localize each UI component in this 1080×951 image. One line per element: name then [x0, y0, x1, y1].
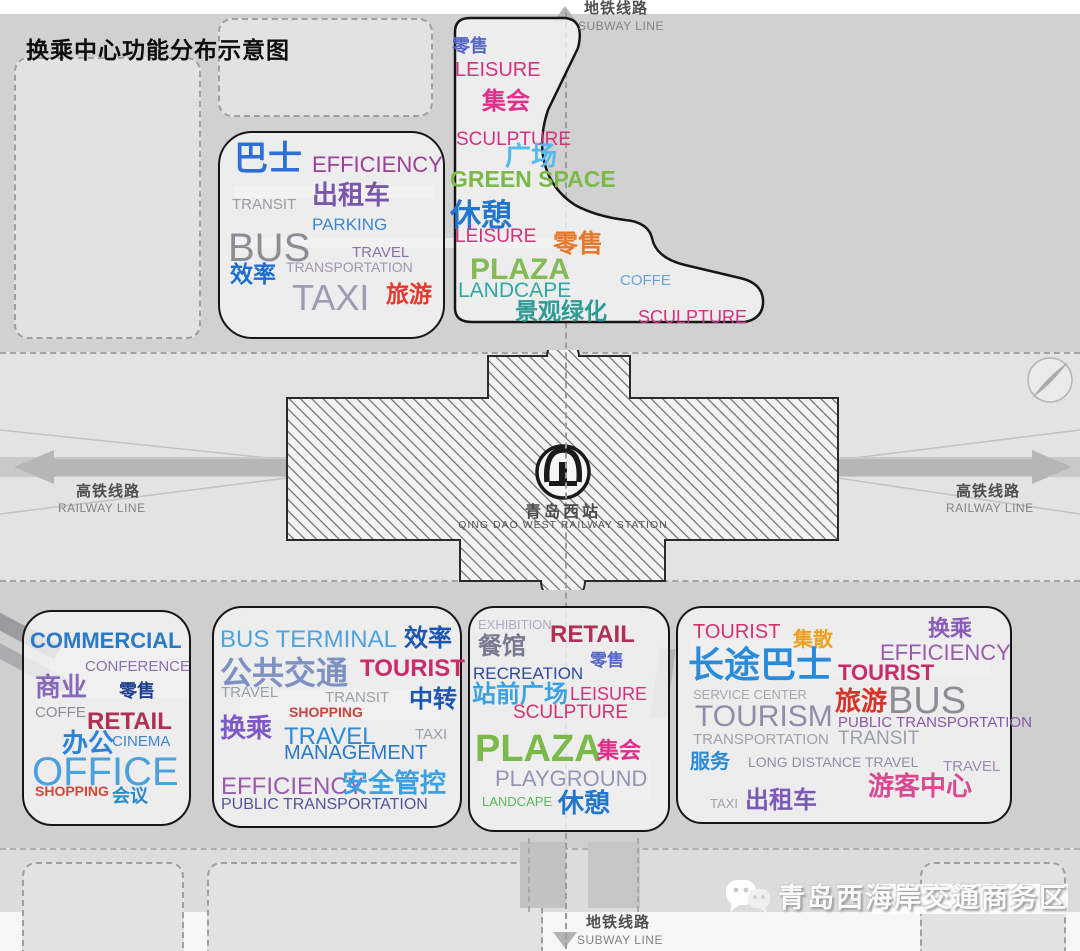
cloud-word: LONG DISTANCE TRAVEL [748, 755, 918, 769]
cloud-word: GREEN SPACE [450, 168, 616, 191]
railway-arrow-left-icon [14, 450, 54, 484]
cloud-word: 零售 [452, 37, 488, 55]
cloud-word: TOURIST [693, 622, 780, 642]
railway-right-label-en: RAILWAY LINE [946, 502, 1034, 515]
cloud-word: LEISURE [570, 685, 647, 703]
cloud-word: LEISURE [455, 227, 536, 246]
cloud-word: 旅游 [386, 283, 432, 306]
cloud-word: 集会 [597, 740, 641, 762]
cloud-word: EXHIBITION [478, 618, 552, 631]
cloud-word: 效率 [404, 627, 452, 651]
subway-bottom-label-cn: 地铁线路 [586, 915, 650, 932]
cloud-word: SCULPTURE [513, 703, 628, 722]
cloud-word: 换乘 [220, 715, 272, 741]
cloud-word: PARKING [312, 216, 387, 233]
cloud-word: 会议 [112, 787, 148, 805]
cloud-word: 服务 [690, 752, 730, 772]
cloud-word: 餐馆 [478, 635, 526, 659]
cloud-word: SHOPPING [35, 784, 109, 798]
cloud-word: LANDCAPE [482, 795, 552, 808]
subway-bottom-label-en: SUBWAY LINE [577, 934, 663, 947]
cloud-word: 集会 [482, 90, 530, 114]
station-name-en: QING DAO WEST RAILWAY STATION [413, 519, 713, 531]
railway-right-label-cn: 高铁线路 [956, 484, 1020, 501]
cloud-word: TRANSIT [838, 729, 919, 748]
wordcloud-tourist-se: TOURIST集散换乘长途巴士EFFICIENCYTOURISTSERVICE … [676, 606, 1012, 824]
cloud-word: 零售 [590, 652, 624, 669]
railway-left-label-cn: 高铁线路 [76, 484, 140, 501]
cloud-word: TAXI [292, 280, 369, 316]
cloud-word: TAXI [710, 797, 738, 810]
railway-arrow-right-icon [1032, 450, 1072, 484]
wordcloud-bus-terminal: BUS TERMINAL效率公共交通TOURISTTRAVELTRANSIT中转… [212, 606, 462, 828]
subway-top-label-cn: 地铁线路 [584, 1, 648, 18]
cloud-word: 零售 [119, 682, 155, 700]
cloud-word: PLAZA [475, 730, 602, 768]
cloud-word: SCULPTURE [638, 308, 747, 326]
wordcloud-station-plaza: EXHIBITIONRETAIL餐馆零售RECREATION站前广场LEISUR… [468, 606, 670, 832]
cloud-word: RECREATION [473, 665, 583, 682]
cloud-word: PUBLIC TRANSPORTATION [221, 797, 428, 813]
cloud-word: TRAVEL [221, 685, 278, 700]
cloud-word: 安全管控 [342, 770, 446, 796]
cloud-word: COFFE [35, 705, 86, 720]
cloud-word: 景观绿化 [515, 300, 607, 323]
cloud-word: COMMERCIAL [30, 630, 182, 652]
cloud-word: TRANSPORTATION [286, 260, 413, 274]
railway-arrow-left-shaft [52, 459, 290, 476]
cloud-word: BUS TERMINAL [220, 628, 397, 652]
cloud-word: SHOPPING [289, 705, 363, 719]
cloud-word: 巴士 [234, 142, 302, 176]
cloud-word: CONFERENCE [85, 659, 190, 674]
cloud-word: 旅游 [835, 688, 887, 714]
watermark-text: 青岛西海岸交通商务区 [778, 876, 1068, 915]
subway-top-label-en: SUBWAY LINE [578, 20, 664, 33]
cloud-word: 效率 [230, 263, 276, 286]
wordcloud-plaza-ne: 零售LEISURE集会SCULPTURE广场GREEN SPACE休憩LEISU… [443, 12, 773, 327]
wordcloud-transit-nw: 巴士EFFICIENCY出租车TRANSITPARKINGBUSTRAVELTR… [218, 131, 445, 339]
cloud-word: 换乘 [928, 618, 972, 640]
cloud-word: TRANSPORTATION [693, 732, 829, 747]
cloud-word: TRAVEL [352, 245, 409, 260]
site-dash-line [637, 838, 639, 912]
cloud-word: CINEMA [112, 734, 170, 749]
cloud-word: TAXI [415, 727, 447, 742]
wordcloud-plaza-ne-words: 零售LEISURE集会SCULPTURE广场GREEN SPACE休憩LEISU… [443, 12, 773, 327]
cloud-word: TRANSIT [325, 690, 389, 705]
cloud-word: TOURISM [695, 702, 833, 732]
wordcloud-commercial-sw: COMMERCIALCONFERENCE商业零售COFFERETAIL办公CIN… [22, 610, 191, 826]
site-dash-line [528, 838, 530, 912]
cloud-word: LEISURE [455, 60, 541, 80]
cloud-word: TRANSIT [232, 197, 296, 212]
watermark: 青岛西海岸交通商务区 [724, 872, 1068, 918]
cloud-word: 中转 [409, 688, 457, 712]
cloud-word: 出租车 [745, 789, 817, 813]
cloud-word: 出租车 [312, 182, 390, 208]
cloud-word: PLAYGROUND [495, 768, 647, 790]
cloud-word: EFFICIENCY [312, 154, 443, 176]
cloud-word: 休憩 [558, 790, 610, 816]
cloud-word: 游客中心 [868, 773, 972, 799]
cloud-word: 商业 [35, 674, 87, 700]
wechat-icon [724, 872, 772, 918]
cloud-word: RETAIL [550, 623, 635, 647]
cloud-word: TOURIST [360, 657, 465, 681]
diagram-canvas: 青岛西站 QING DAO WEST RAILWAY STATION 巴士EFF… [0, 0, 1080, 951]
cloud-word: MANAGEMENT [284, 743, 427, 763]
china-railway-logo-icon [537, 446, 589, 498]
page-title: 换乘中心功能分布示意图 [26, 38, 290, 63]
cloud-word: COFFE [620, 273, 671, 288]
cloud-word: 长途巴士 [688, 647, 832, 683]
railway-left-label-en: RAILWAY LINE [58, 502, 146, 515]
